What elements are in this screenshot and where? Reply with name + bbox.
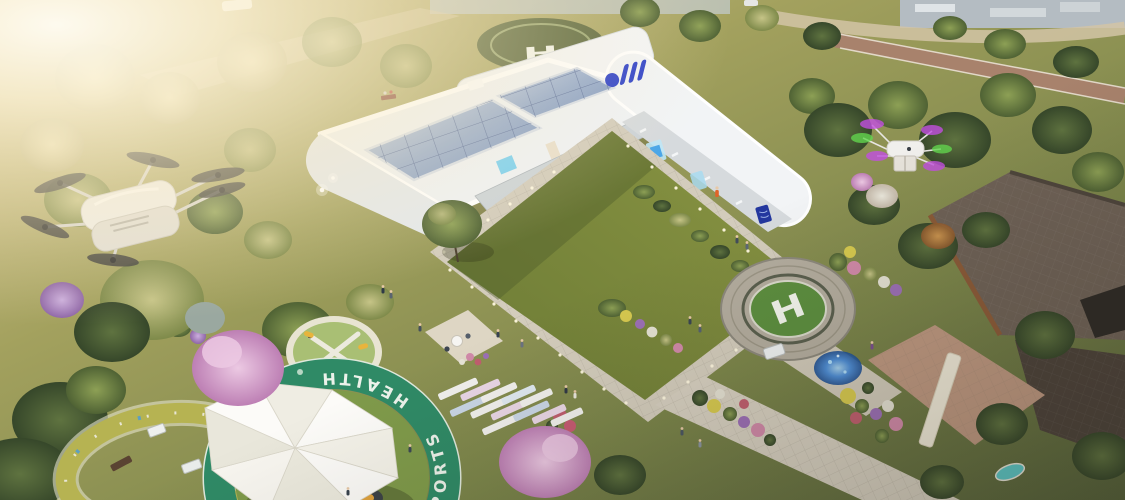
- person: [382, 285, 385, 293]
- person-orange-jacket: [715, 186, 719, 197]
- parked-car: [744, 0, 758, 6]
- small-drone-body: [887, 141, 924, 157]
- scene-stage: H: [0, 0, 1125, 500]
- garden-helipad: H: [721, 258, 855, 360]
- campus-aerial-illustration: H: [0, 0, 1125, 500]
- glowing-water-feature: [814, 351, 862, 385]
